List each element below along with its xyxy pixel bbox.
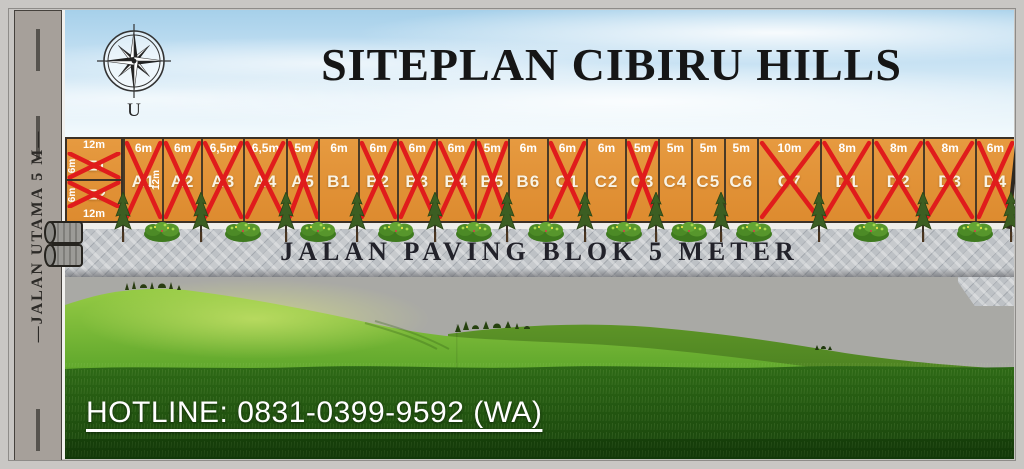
hills-illustration bbox=[65, 277, 1014, 459]
sold-cross-icon bbox=[822, 139, 871, 221]
plot-name-label: B1 bbox=[327, 172, 351, 192]
sold-cross-icon bbox=[925, 139, 974, 221]
hotline-text: HOTLINE: 0831-0399-9592 (WA) bbox=[86, 396, 542, 430]
plot-A4: 6,5m A4 bbox=[243, 139, 285, 221]
plot-D3: 8m D3 bbox=[923, 139, 974, 221]
plot-width-label: 6m bbox=[588, 141, 625, 155]
sold-cross-icon bbox=[874, 139, 923, 221]
compass-north-label: U bbox=[95, 100, 173, 122]
sold-cross-icon bbox=[67, 152, 121, 179]
road-dash bbox=[36, 29, 40, 71]
sold-cross-icon bbox=[245, 139, 285, 221]
plot-width-label: 6m bbox=[510, 141, 547, 155]
sold-cross-icon bbox=[627, 139, 658, 221]
plot-width-label: 5m bbox=[660, 141, 691, 155]
paving-road-label: JALAN PAVING BLOK 5 METER bbox=[65, 237, 1014, 267]
sold-cross-icon bbox=[549, 139, 586, 221]
plot-A3: 6,5m A3 bbox=[201, 139, 243, 221]
plot-width-label: 5m bbox=[693, 141, 724, 155]
compass-rose-icon bbox=[95, 22, 173, 100]
plot-B2: 6m B2 bbox=[358, 139, 397, 221]
plot-C6: 5m C6 bbox=[724, 139, 757, 221]
hills-scene bbox=[65, 277, 1014, 459]
sold-cross-icon bbox=[288, 139, 319, 221]
sold-cross-icon bbox=[438, 139, 475, 221]
road-dash bbox=[36, 409, 40, 451]
sold-cross-icon bbox=[125, 139, 162, 221]
plot-B5: 5m B5 bbox=[475, 139, 508, 221]
corner-width-label-top: 12m bbox=[67, 139, 121, 152]
sky-banner: U SITEPLAN CIBIRU HILLS bbox=[65, 10, 1014, 137]
plot-B3: 6m B3 bbox=[397, 139, 436, 221]
plot-D2: 8m D2 bbox=[872, 139, 923, 221]
sold-cross-icon bbox=[67, 181, 121, 208]
plot-C3: 5m C3 bbox=[625, 139, 658, 221]
plot-C5: 5m C5 bbox=[691, 139, 724, 221]
plot-C7: 10m C7 bbox=[757, 139, 821, 221]
plot-name-label: C6 bbox=[729, 172, 753, 192]
plot-A5: 5m A5 bbox=[286, 139, 319, 221]
plot-B4: 6m B4 bbox=[436, 139, 475, 221]
plot-name-label: C4 bbox=[664, 172, 688, 192]
plot-C2: 6m C2 bbox=[586, 139, 625, 221]
siteplan-poster: —JALAN UTAMA 5 M— U SITEPLAN CIBIRU HILL… bbox=[0, 0, 1024, 469]
plot-B1: 6m B1 bbox=[318, 139, 357, 221]
plot-width-label: 6m bbox=[320, 141, 357, 155]
sold-cross-icon bbox=[360, 139, 397, 221]
plot-E1: 6m E1 bbox=[67, 152, 121, 179]
plot-D1: 8m D1 bbox=[820, 139, 871, 221]
plot-A1: 6m A1 12m bbox=[123, 139, 162, 221]
sold-cross-icon bbox=[164, 139, 201, 221]
sold-cross-icon bbox=[399, 139, 436, 221]
plot-name-label: C2 bbox=[595, 172, 619, 192]
plot-B6: 6m B6 bbox=[508, 139, 547, 221]
plot-E2: 6m E2 bbox=[67, 179, 121, 208]
sold-cross-icon bbox=[203, 139, 243, 221]
plot-name-label: C5 bbox=[696, 172, 720, 192]
plot-C1: 6m C1 bbox=[547, 139, 586, 221]
sold-cross-icon bbox=[477, 139, 508, 221]
plot-A2: 6m A2 bbox=[162, 139, 201, 221]
corner-block-E: 12m 6m E1 6m E2 12m bbox=[65, 139, 123, 221]
plot-C4: 5m C4 bbox=[658, 139, 691, 221]
sold-cross-icon bbox=[759, 139, 821, 221]
plots-row: 12m 6m E1 6m E2 12m 6m A1 12m 6m A2 bbox=[65, 137, 1014, 223]
plot-width-label: 5m bbox=[726, 141, 757, 155]
paving-road: JALAN PAVING BLOK 5 METER bbox=[65, 229, 1014, 277]
plot-name-label: B6 bbox=[516, 172, 540, 192]
poster-title: SITEPLAN CIBIRU HILLS bbox=[245, 38, 978, 91]
gate-culvert-icon bbox=[42, 220, 86, 268]
